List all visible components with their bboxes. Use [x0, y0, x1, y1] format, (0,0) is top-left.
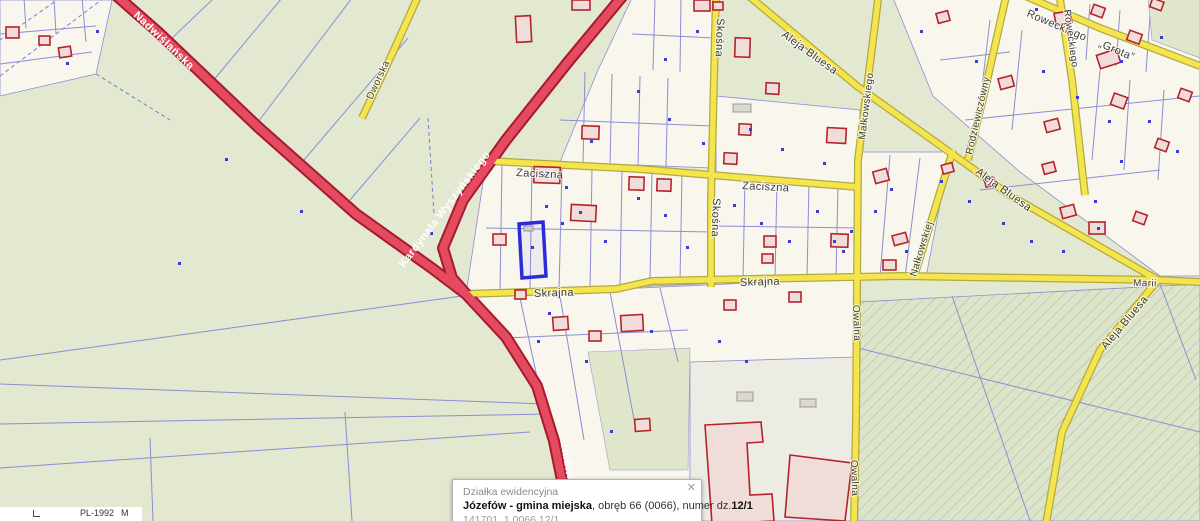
road-label-owalna-2: Owalna — [848, 460, 860, 497]
close-icon[interactable]: ✕ — [687, 483, 696, 494]
road-label-skosna-n: Skośna — [713, 18, 726, 58]
school-building-b — [785, 455, 852, 521]
road-label-skrajna-w: Skrajna — [534, 287, 575, 300]
road-label-owalna-1: Owalna — [850, 305, 862, 342]
crs-label: PL-1992 — [80, 508, 114, 518]
cadastral-map[interactable]: Nadwiślańska Nadwiślańska Kardynała Wysz… — [0, 0, 1200, 521]
parcel-info-popup: ✕ Działka ewidencyjna Józefów - gmina mi… — [452, 479, 702, 521]
popup-parcel-id: 141701_1.0066.12/1 — [463, 513, 691, 521]
popup-municipality: Józefów - gmina miejska — [463, 500, 592, 512]
road-label-marii: Marii — [1133, 278, 1157, 289]
road-label-zaciszna-e: Zaciszna — [742, 180, 790, 194]
road-label-skrajna-e: Skrajna — [740, 276, 781, 289]
map-viewer: Nadwiślańska Nadwiślańska Kardynała Wysz… — [0, 0, 1200, 521]
popup-parcel-line: Józefów - gmina miejska, obręb 66 (0066)… — [463, 499, 691, 513]
forest-area — [858, 284, 1200, 521]
scale-tick-icon — [33, 510, 40, 517]
popup-details: , obręb 66 (0066), numer dz. — [592, 500, 731, 512]
map-footer: PL-1992 M — [0, 507, 142, 521]
scale-label: M — [121, 508, 129, 518]
popup-title: Działka ewidencyjna — [463, 485, 691, 499]
popup-parcel-number: 12/1 — [731, 500, 752, 512]
road-label-skosna-s: Skośna — [709, 198, 722, 238]
road-label-zaciszna-w: Zaciszna — [516, 167, 564, 181]
selected-parcel[interactable] — [519, 222, 546, 278]
